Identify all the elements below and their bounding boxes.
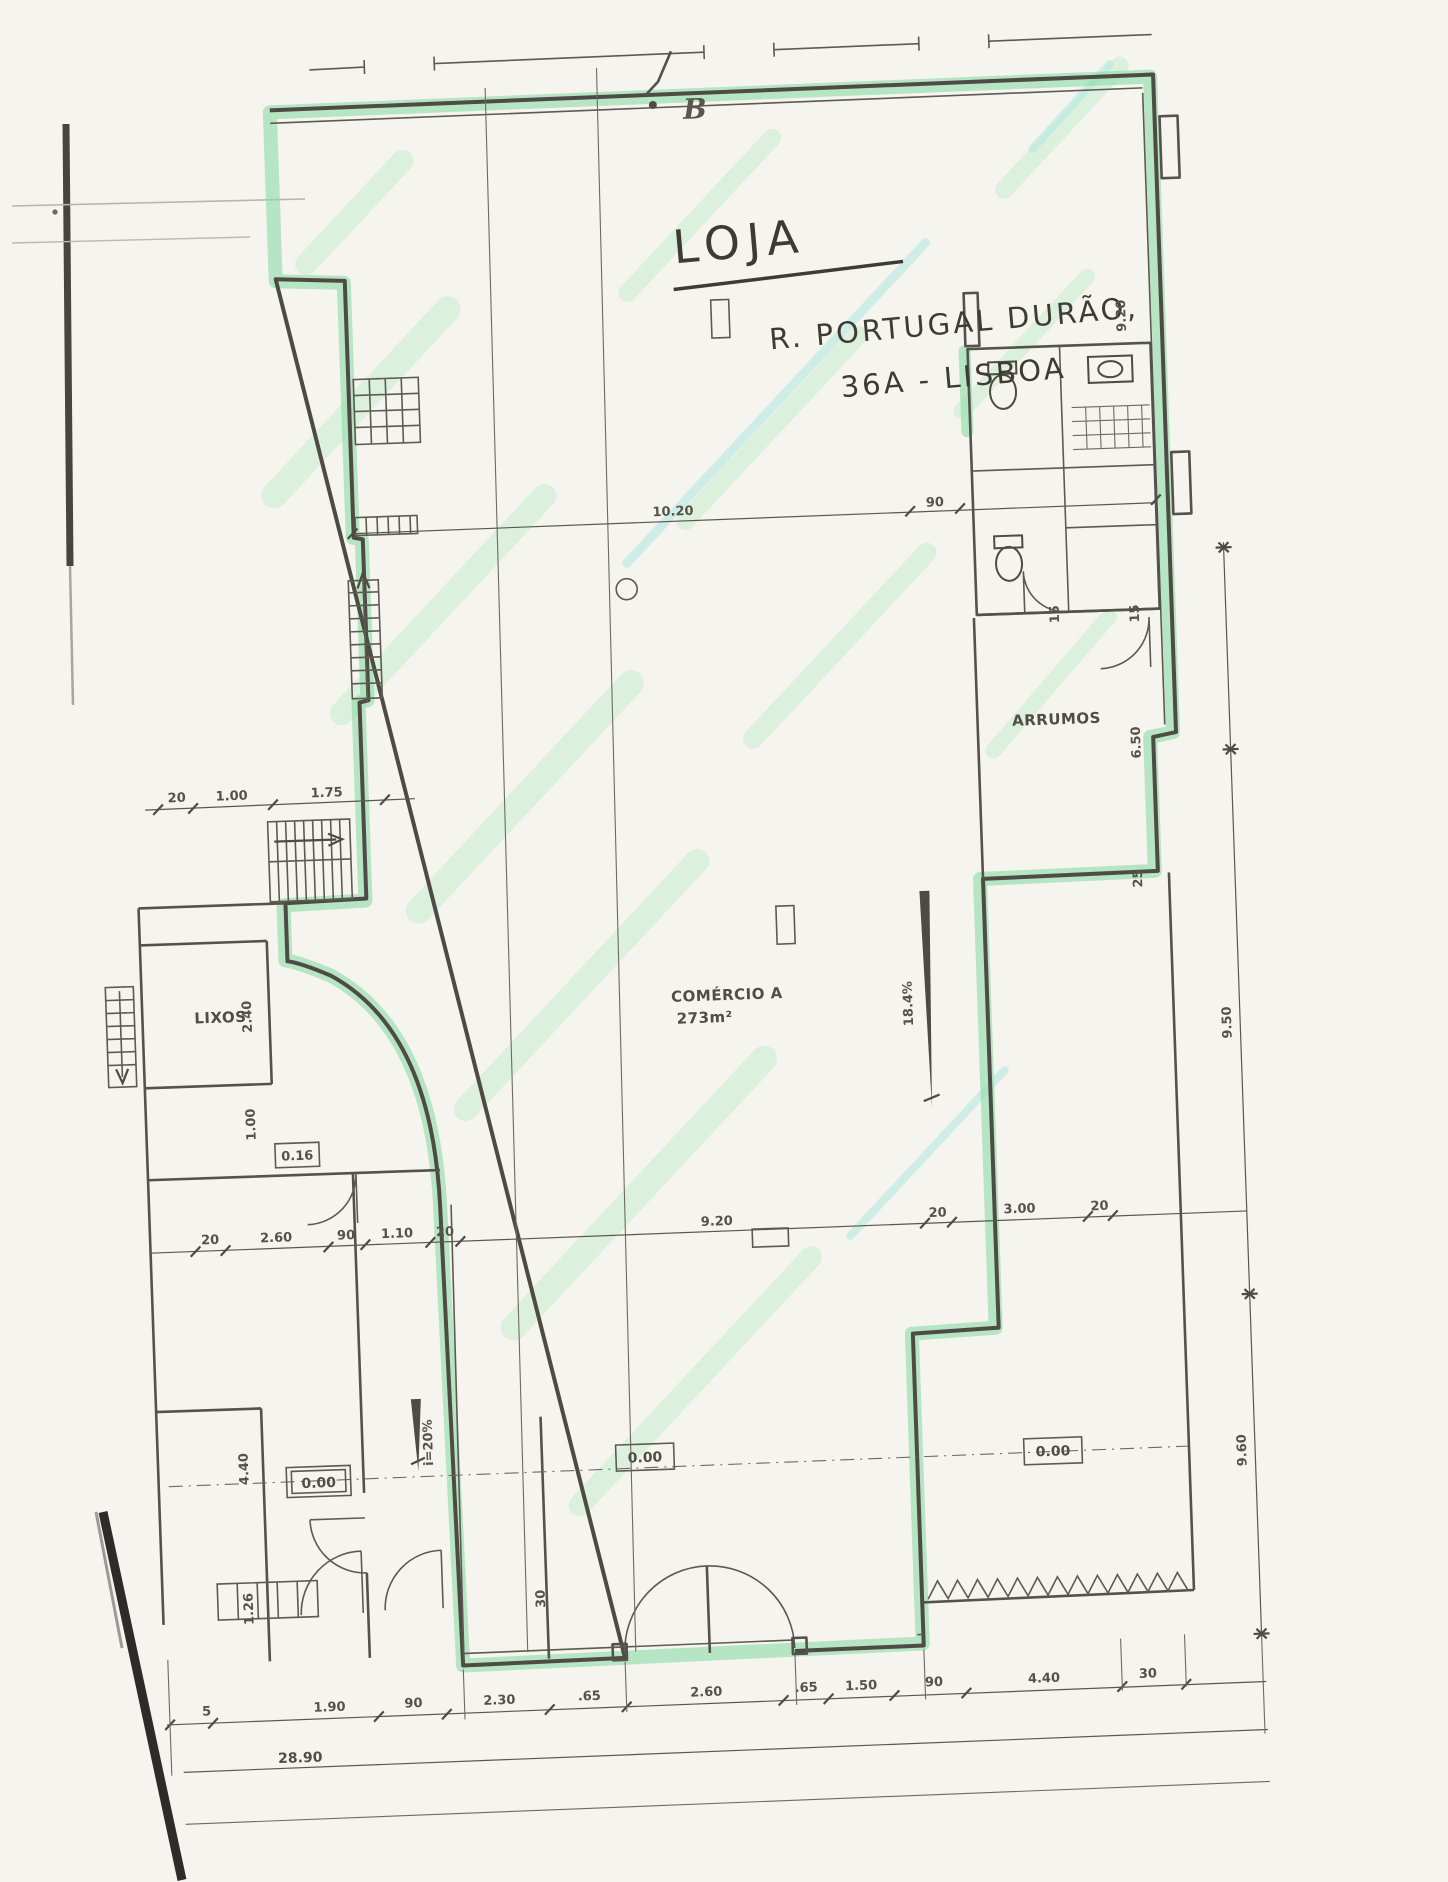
dim-left-row-1: 1.00: [215, 789, 248, 805]
level-right: 0.00: [1036, 1443, 1071, 1460]
dim-bottom-total: 28.90: [278, 1750, 323, 1768]
plan-drawing: ARRUMOS: [73, 26, 1275, 1826]
floor-plan-svg: ARRUMOS: [0, 0, 1448, 1882]
dim-mid-6: 20: [928, 1205, 947, 1221]
highlighter-streaks: [260, 64, 1169, 1515]
dim-bot-1: 1.90: [313, 1700, 346, 1716]
dim-bot-8: 90: [925, 1675, 944, 1691]
dim-wc-left: 15: [1048, 605, 1064, 624]
dimension-ticks-left-row: [153, 795, 390, 815]
dim-mid-1: 2.60: [260, 1230, 293, 1246]
scan-speck: [52, 209, 57, 214]
dim-left-row-2: 1.75: [310, 785, 343, 801]
dim-bot-5: 2.60: [690, 1685, 723, 1701]
column-1: [711, 299, 730, 338]
dim-mid-3: 1.10: [381, 1226, 414, 1242]
scanned-floor-plan-page: ARRUMOS: [0, 0, 1448, 1882]
dim-wc-right: 15: [1128, 604, 1144, 623]
dim-left-lower: 4.40: [237, 1453, 253, 1486]
dim-top-right: 90: [926, 495, 945, 511]
wc-tile-grid: [1072, 405, 1151, 450]
dim-bot-4: .65: [578, 1689, 602, 1705]
room-door: [310, 1518, 367, 1575]
scan-edge-left: [66, 124, 70, 566]
parapet-line: [309, 29, 1152, 76]
neighbor-bay: [897, 872, 1194, 1602]
address-line-1: R. PORTUGAL DURÃO,: [768, 290, 1140, 356]
dimension-layer: 10.20 90 20 1.00 1.75 20 2.60 90 1.10 20…: [117, 296, 1275, 1825]
dim-bot-2: 90: [404, 1696, 423, 1712]
dim-bot-7: 1.50: [845, 1678, 878, 1694]
scan-edge-bottom-left: [103, 1512, 182, 1880]
column-3: [752, 1228, 789, 1247]
dim-mid-8: 20: [1090, 1199, 1109, 1215]
corridor-door: [306, 1173, 358, 1225]
dim-door-width: 30: [534, 1589, 550, 1608]
ramp-right-label: 18.4%: [901, 981, 918, 1027]
dim-bot-9: 4.40: [1028, 1671, 1061, 1687]
level-small-upper: 0.16: [281, 1148, 314, 1164]
handwritten-title: LOJA R. PORTUGAL DURÃO, 36A - LISBOA: [668, 181, 1145, 418]
dim-mid-2: 90: [337, 1228, 356, 1244]
dim-top-span: 10.20: [652, 504, 694, 520]
scan-edge-left-tail: [70, 566, 73, 705]
dim-bot-6: .65: [794, 1680, 818, 1696]
stair-far-left: [105, 987, 136, 1088]
dim-bot-0: 5: [202, 1704, 212, 1719]
arrumos-label: ARRUMOS: [1012, 709, 1101, 730]
dim-right-storage: 6.50: [1129, 726, 1145, 759]
dim-bot-3: 2.30: [483, 1693, 516, 1709]
scan-page-line-1: [12, 199, 305, 206]
bottom-left-doors: [299, 1548, 443, 1615]
dim-far-right-lower: 9.60: [1235, 1434, 1251, 1467]
dim-wall-jog: 25: [1131, 869, 1147, 888]
dim-mid-4: 20: [436, 1225, 455, 1241]
level-center: 0.00: [627, 1449, 662, 1466]
dim-bot-10: 30: [1139, 1666, 1158, 1682]
ramp-right: 18.4%: [897, 891, 940, 1109]
dimension-ticks-top: [347, 494, 1161, 538]
dim-right-upper: 9.20: [1114, 299, 1130, 332]
section-lines: B: [472, 48, 820, 1655]
stair-mid-left: [268, 819, 353, 902]
comercio-label: COMÉRCIO A: [671, 983, 783, 1006]
comercio-area-label: 273m²: [676, 1008, 733, 1028]
axis-circle: [616, 578, 638, 600]
dim-far-right-upper: 9.50: [1220, 1006, 1236, 1039]
dim-mid-0: 20: [201, 1233, 220, 1249]
section-marker-label: B: [681, 92, 707, 126]
scan-page-line-2: [12, 237, 250, 243]
column-2: [776, 906, 795, 945]
dim-mid-7: 3.00: [1003, 1201, 1036, 1217]
dim-left-mid: 1.00: [244, 1108, 260, 1141]
ramp-left-label: i=20%: [421, 1419, 438, 1466]
dim-lixos-height: 2.40: [240, 1000, 256, 1033]
dim-mid-5: 9.20: [701, 1214, 734, 1230]
scan-artifacts: [12, 124, 305, 1880]
dim-left-row-0: 20: [167, 791, 186, 807]
dim-left-bottom: 1.26: [242, 1593, 258, 1626]
title-loja: LOJA: [671, 209, 808, 274]
level-left: 0.00: [301, 1475, 336, 1492]
ramp-left: i=20%: [409, 1398, 437, 1471]
lixos-label: LIXOS: [194, 1008, 247, 1028]
address-line-2: 36A - LISBOA: [839, 351, 1067, 405]
